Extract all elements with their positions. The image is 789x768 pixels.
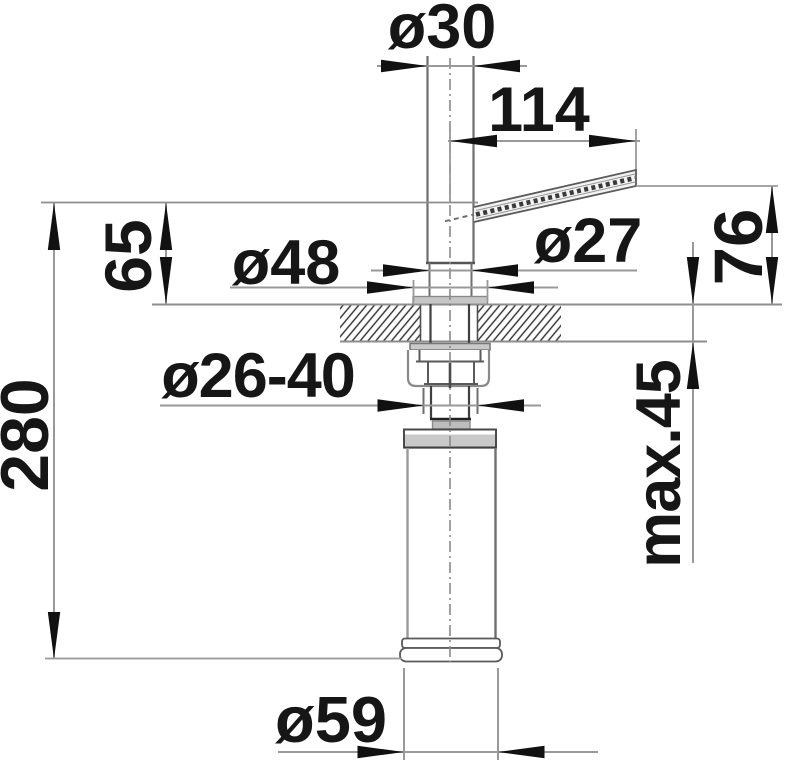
svg-text:max.45: max.45 [624,360,694,568]
svg-text:114: 114 [488,75,590,145]
svg-text:ø30: ø30 [388,0,497,62]
svg-text:76: 76 [700,209,777,286]
svg-text:ø26-40: ø26-40 [161,341,355,411]
svg-text:65: 65 [91,219,165,292]
svg-text:ø48: ø48 [232,228,341,298]
svg-text:ø27: ø27 [534,206,643,276]
svg-text:ø59: ø59 [275,683,387,756]
svg-text:280: 280 [0,378,63,491]
